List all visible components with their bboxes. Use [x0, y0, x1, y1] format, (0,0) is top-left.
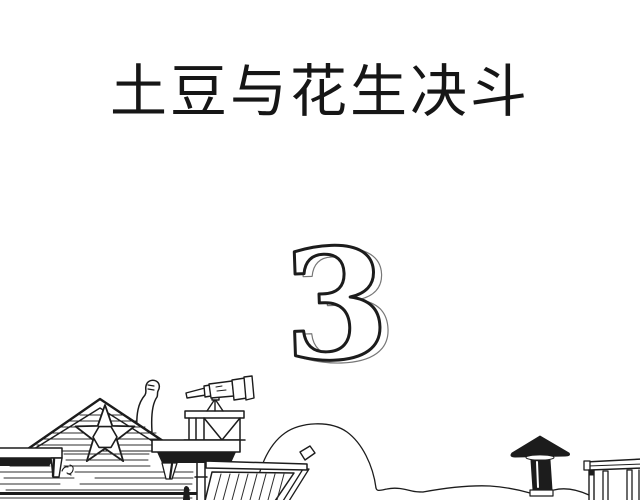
ground-line: [423, 486, 589, 495]
chapter-number-drawing: 3 3: [280, 213, 400, 398]
finial-drawing: [183, 486, 190, 500]
fist-weathervane-drawing: [137, 380, 160, 432]
chimney-drawing: [511, 436, 570, 496]
chapter-number: 3: [280, 213, 392, 396]
bush-bump: [376, 488, 423, 492]
plank-building-drawing: [584, 459, 640, 500]
telescope-drawing: [186, 376, 254, 411]
comic-page: 土豆与花生决斗 3 3: [0, 0, 640, 500]
town-scene-drawing: 3 3: [0, 0, 640, 500]
